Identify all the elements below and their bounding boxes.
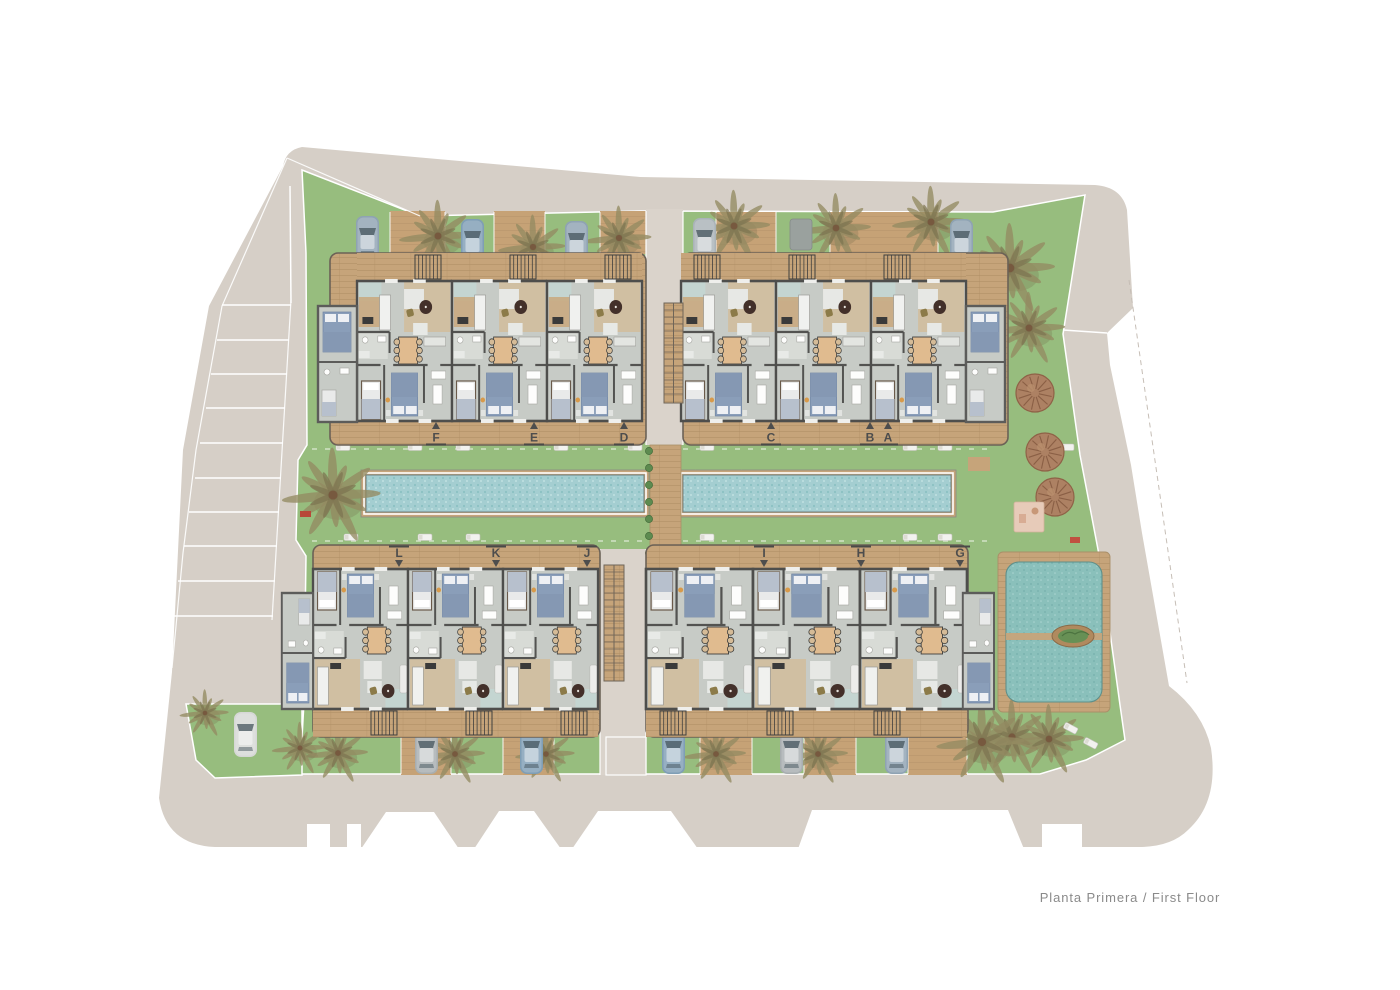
svg-text:K: K: [492, 546, 501, 560]
svg-text:D: D: [620, 431, 629, 445]
svg-text:F: F: [432, 431, 439, 445]
svg-text:C: C: [767, 431, 776, 445]
svg-text:J: J: [584, 546, 591, 560]
svg-text:Planta Primera / First Floor: Planta Primera / First Floor: [1040, 890, 1221, 905]
svg-text:H: H: [857, 546, 866, 560]
svg-text:G: G: [955, 546, 964, 560]
svg-text:L: L: [395, 546, 402, 560]
svg-text:A: A: [884, 431, 893, 445]
svg-text:I: I: [762, 546, 765, 560]
svg-text:E: E: [530, 431, 538, 445]
svg-text:B: B: [866, 431, 875, 445]
